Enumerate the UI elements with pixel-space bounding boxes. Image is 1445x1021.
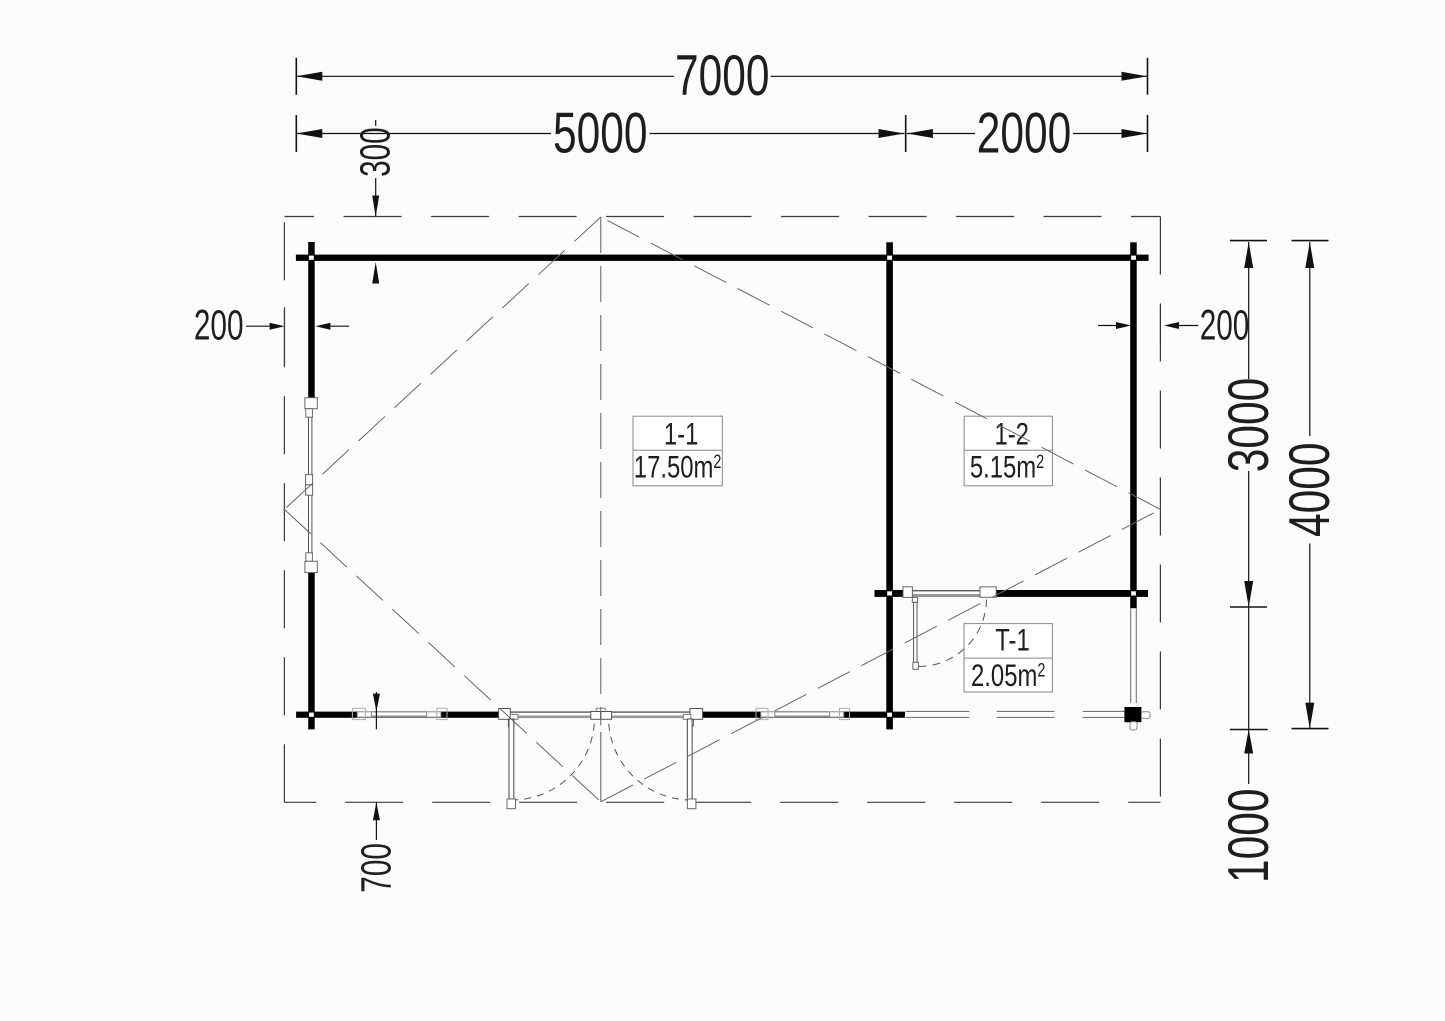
svg-text:3000: 3000 — [1216, 378, 1281, 472]
svg-text:300: 300 — [351, 127, 399, 177]
svg-text:700: 700 — [352, 843, 400, 893]
svg-text:17.50m2: 17.50m2 — [634, 449, 722, 484]
svg-text:2.05m2: 2.05m2 — [971, 658, 1045, 693]
svg-text:5.15m2: 5.15m2 — [970, 449, 1044, 484]
svg-text:T-1: T-1 — [995, 622, 1029, 657]
svg-text:1-1: 1-1 — [664, 416, 698, 451]
svg-text:5000: 5000 — [553, 100, 647, 165]
svg-text:200: 200 — [1200, 301, 1250, 349]
svg-text:2000: 2000 — [977, 100, 1071, 165]
svg-text:1000: 1000 — [1216, 789, 1281, 883]
svg-text:200: 200 — [194, 301, 244, 349]
svg-text:1-2: 1-2 — [994, 416, 1028, 451]
svg-text:7000: 7000 — [675, 43, 769, 108]
svg-text:4000: 4000 — [1277, 443, 1342, 537]
